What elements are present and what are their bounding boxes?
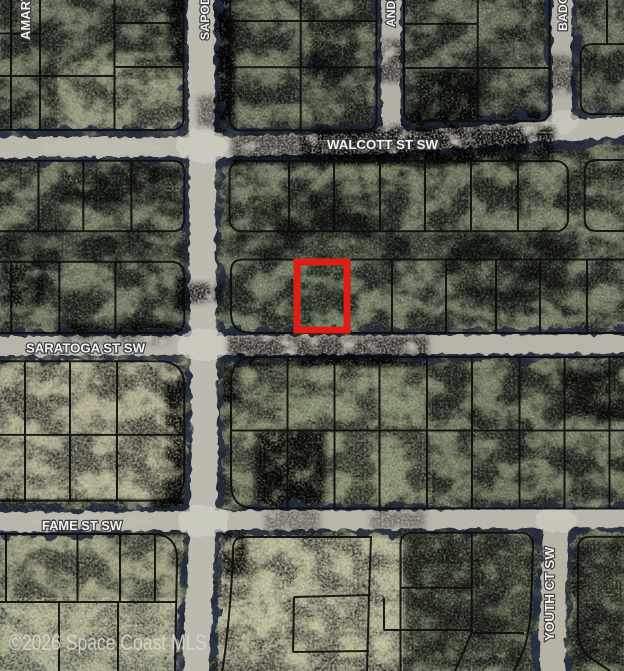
- svg-text:BADGER AVE SW: BADGER AVE SW: [556, 0, 570, 31]
- svg-text:AMARYLLIS ST SW: AMARYLLIS ST SW: [18, 0, 33, 40]
- svg-text:©2026 Space Coast MLS: ©2026 Space Coast MLS: [9, 630, 207, 655]
- svg-text:SARATOGA ST SW: SARATOGA ST SW: [26, 341, 146, 356]
- svg-text:YOUTH CT SW: YOUTH CT SW: [542, 546, 557, 641]
- svg-text:SAPODILLA AVE SW: SAPODILLA AVE SW: [198, 0, 212, 40]
- svg-text:FAME ST SW: FAME ST SW: [42, 518, 123, 533]
- svg-text:ANDING AVE SW: ANDING AVE SW: [384, 0, 398, 27]
- svg-text:WALCOTT ST SW: WALCOTT ST SW: [327, 137, 439, 152]
